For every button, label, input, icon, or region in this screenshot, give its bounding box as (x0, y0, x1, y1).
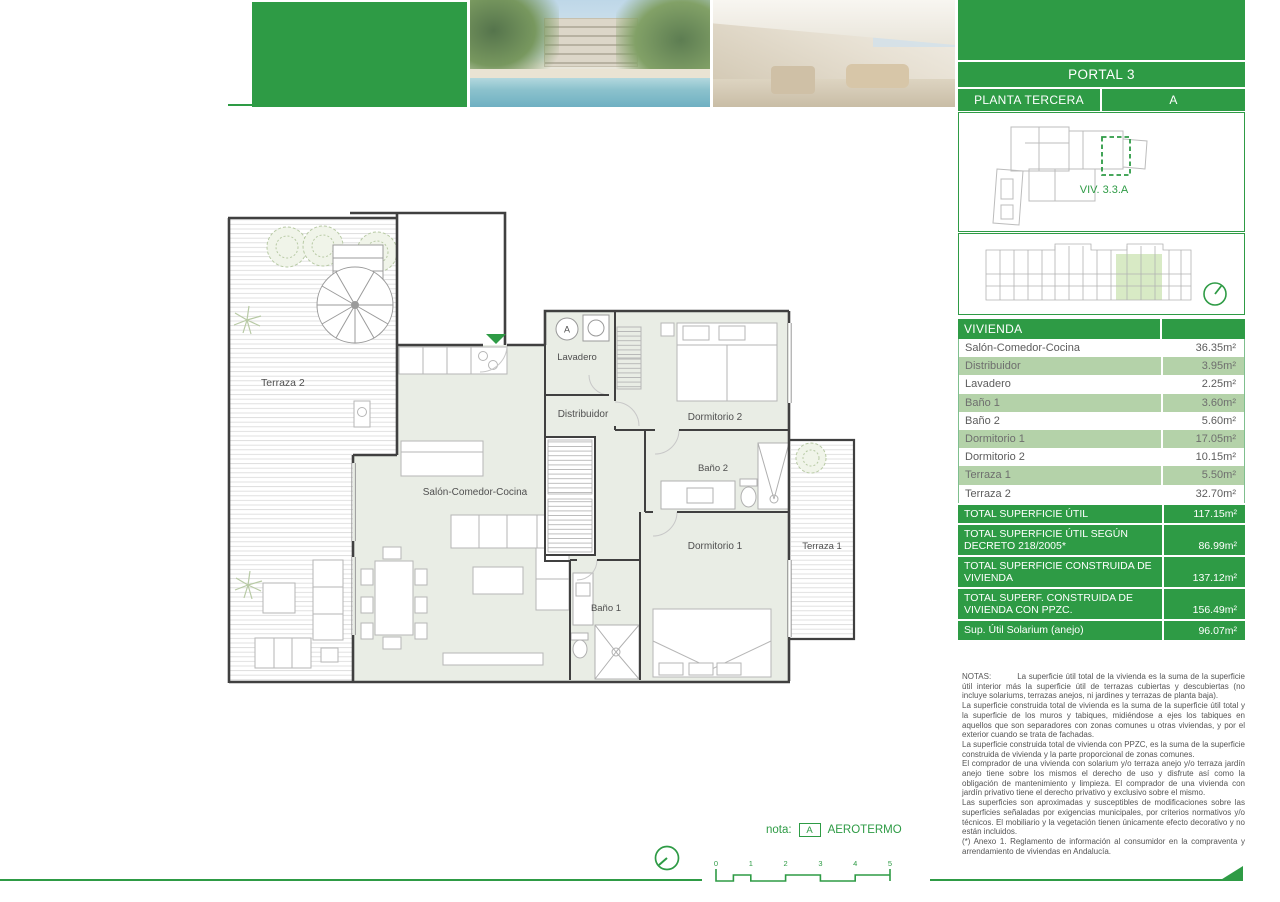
room-label: Terraza 2 (959, 488, 1161, 500)
scale-tick-label: 3 (818, 859, 822, 868)
aerotermo-marker-box: A (799, 823, 821, 837)
room-label: Terraza 1 (959, 469, 1161, 481)
title-block-sidebar: PORTAL 3 PLANTA TERCERA A VIV. 3.3.A (958, 0, 1245, 640)
total-row: Sup. Útil Solarium (anejo)96.07m² (958, 621, 1245, 640)
room-label-dormitorio1: Dormitorio 1 (688, 541, 743, 552)
notes-paragraph: NOTAS:La superficie útil total de la viv… (962, 672, 1245, 701)
room-label: Dormitorio 1 (959, 433, 1161, 445)
notes-title: NOTAS: (962, 672, 991, 681)
footer-rule-left (0, 879, 702, 881)
room-area: 3.95m² (1161, 357, 1244, 375)
aerotermo-marker: A (564, 325, 570, 335)
total-label: TOTAL SUPERFICIE ÚTIL SEGÚN DECRETO 218/… (958, 525, 1162, 555)
table-header-value-cell (1162, 319, 1245, 339)
room-area: 5.50m² (1161, 466, 1244, 484)
room-label-lavadero: Lavadero (557, 352, 597, 363)
nota-label: nota: (766, 824, 792, 836)
footer-rule-right (930, 879, 1243, 881)
plan-sheet: PORTAL 3 PLANTA TERCERA A VIV. 3.3.A (0, 0, 1280, 902)
table-row: Terraza 15.50m² (959, 466, 1244, 484)
photo-terrace-furniture (846, 64, 909, 88)
total-label: TOTAL SUPERF. CONSTRUIDA DE VIVIENDA CON… (958, 589, 1162, 619)
room-area: 10.15m² (1161, 448, 1244, 466)
photo-terrace-furniture (771, 66, 815, 94)
total-row: TOTAL SUPERF. CONSTRUIDA DE VIVIENDA CON… (958, 589, 1245, 619)
room-label-terraza2: Terraza 2 (261, 377, 305, 389)
total-row: TOTAL SUPERFICIE CONSTRUIDA DE VIVIENDA1… (958, 557, 1245, 587)
photo-pool-deck (470, 69, 710, 79)
notes-paragraph: La superficie construida total de vivien… (962, 740, 1245, 759)
portal-title: PORTAL 3 (958, 62, 1245, 87)
table-row: Distribuidor3.95m² (959, 357, 1244, 375)
total-label: Sup. Útil Solarium (anejo) (958, 621, 1162, 640)
dormitorio1-furniture (653, 609, 771, 677)
room-label: Salón-Comedor-Cocina (959, 342, 1161, 354)
room-area: 32.70m² (1161, 485, 1244, 503)
unit-code-label: VIV. 3.3.A (1080, 184, 1129, 196)
photo-pool (470, 0, 710, 107)
room-label-distribuidor: Distribuidor (558, 409, 609, 420)
scale-tick-label: 1 (749, 859, 753, 868)
key-plan-box (958, 233, 1245, 315)
key-plan-sketch (959, 234, 1244, 312)
total-label: TOTAL SUPERFICIE CONSTRUIDA DE VIVIENDA (958, 557, 1162, 587)
notes-paragraph: El comprador de una vivienda con solariu… (962, 759, 1245, 798)
room-label-terraza1: Terraza 1 (802, 541, 842, 552)
footer-rule-wedge (1219, 866, 1243, 881)
notes-paragraph: (*) Anexo 1. Reglamento de información a… (962, 837, 1245, 856)
total-value: 137.12m² (1162, 557, 1245, 587)
total-row: TOTAL SUPERFICIE ÚTIL117.15m² (958, 505, 1245, 523)
scale-tick-label: 5 (888, 859, 892, 868)
photo-pool-water (470, 78, 710, 107)
unit-letter: A (1102, 89, 1245, 111)
header-green-tail (228, 104, 254, 106)
distribuidor-closet (545, 437, 595, 555)
room-label-dormitorio2: Dormitorio 2 (688, 412, 743, 423)
areas-table: Salón-Comedor-Cocina36.35m² Distribuidor… (958, 339, 1245, 503)
table-row: Baño 13.60m² (959, 394, 1244, 412)
total-row: TOTAL SUPERFICIE ÚTIL SEGÚN DECRETO 218/… (958, 525, 1245, 555)
site-plan-sketch: VIV. 3.3.A (959, 113, 1244, 229)
scale-bar-line (716, 869, 890, 881)
north-compass-icon (652, 843, 682, 873)
room-area: 5.60m² (1161, 412, 1244, 430)
dormitorio2-furniture (617, 323, 777, 401)
photo-terrace-floor (713, 79, 955, 107)
aerotermo-text: AEROTERMO (828, 824, 902, 836)
table-row: Lavadero2.25m² (959, 375, 1244, 393)
terraza1-deck (791, 442, 853, 638)
floor-label: PLANTA TERCERA (958, 89, 1100, 111)
total-value: 96.07m² (1162, 621, 1245, 640)
room-label: Distribuidor (959, 360, 1161, 372)
scale-tick-label: 2 (784, 859, 788, 868)
table-row: Dormitorio 117.05m² (959, 430, 1244, 448)
room-area: 3.60m² (1161, 394, 1244, 412)
room-area: 17.05m² (1161, 430, 1244, 448)
room-label: Dormitorio 2 (959, 451, 1161, 463)
header-green-block (252, 2, 467, 107)
table-title: VIVIENDA (958, 319, 1160, 339)
room-label-bano2: Baño 2 (698, 463, 728, 474)
floor-plan: A (225, 205, 955, 705)
room-label: Lavadero (959, 378, 1161, 390)
site-plan-box: VIV. 3.3.A (958, 112, 1245, 232)
table-header: VIVIENDA (958, 319, 1245, 339)
sidebar-green-band (958, 0, 1245, 60)
table-row: Terraza 232.70m² (959, 485, 1244, 503)
aerotermo-note: nota: A AEROTERMO (766, 823, 902, 837)
notes-paragraph: Las superficies son aproximadas y suscep… (962, 798, 1245, 837)
room-label: Baño 1 (959, 397, 1161, 409)
total-value: 117.15m² (1162, 505, 1245, 523)
scale-bar: 0 1 2 3 4 5 (710, 856, 900, 888)
photo-terrace (713, 0, 955, 107)
legal-notes: NOTAS:La superficie útil total de la viv… (962, 672, 1245, 856)
table-row: Salón-Comedor-Cocina36.35m² (959, 339, 1244, 357)
room-label-bano1: Baño 1 (591, 603, 621, 614)
total-label: TOTAL SUPERFICIE ÚTIL (958, 505, 1162, 523)
total-value: 86.99m² (1162, 525, 1245, 555)
total-value: 156.49m² (1162, 589, 1245, 619)
scale-tick-label: 4 (853, 859, 857, 868)
room-area: 36.35m² (1161, 339, 1244, 357)
table-row: Dormitorio 210.15m² (959, 448, 1244, 466)
room-label: Baño 2 (959, 415, 1161, 427)
room-area: 2.25m² (1161, 375, 1244, 393)
table-row: Baño 25.60m² (959, 412, 1244, 430)
room-label-salon: Salón-Comedor-Cocina (423, 487, 528, 498)
compass-icon (1204, 283, 1226, 305)
entrance-arrow-icon (486, 334, 506, 344)
scale-tick-label: 0 (714, 859, 718, 868)
notes-paragraph: La superficie construida total de vivien… (962, 701, 1245, 740)
